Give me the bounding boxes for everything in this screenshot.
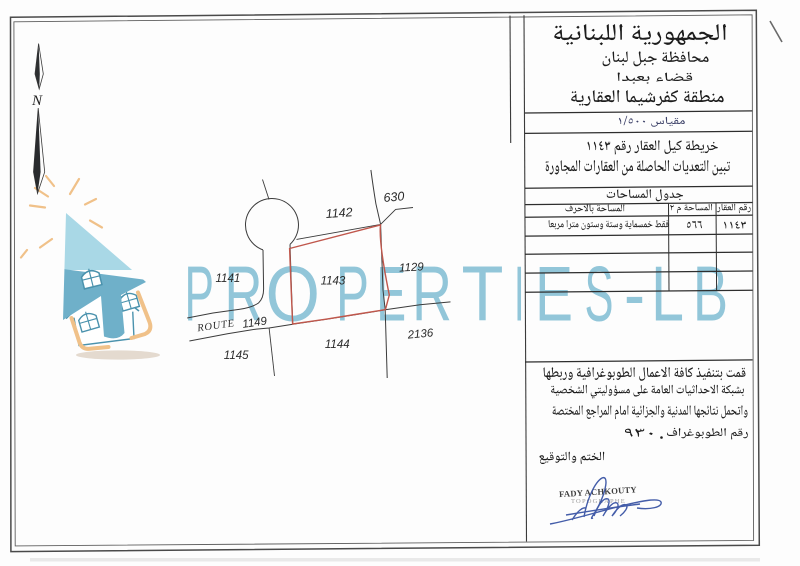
svg-text:1143: 1143 xyxy=(321,276,346,288)
svg-text:B: B xyxy=(693,250,728,338)
svg-text:1129: 1129 xyxy=(399,261,425,274)
svg-text:L: L xyxy=(651,250,684,338)
svg-text:T: T xyxy=(462,250,504,338)
svg-text:1144: 1144 xyxy=(325,339,350,351)
svg-text:N: N xyxy=(31,93,43,109)
svg-text:1141: 1141 xyxy=(216,273,241,285)
svg-text:-: - xyxy=(624,250,645,338)
svg-text:S: S xyxy=(585,250,614,338)
svg-text:1142: 1142 xyxy=(325,205,353,221)
svg-text:630: 630 xyxy=(383,189,405,205)
svg-text:I: I xyxy=(514,250,525,338)
svg-text:2136: 2136 xyxy=(406,327,434,341)
svg-text:E: E xyxy=(535,250,573,338)
svg-text:1145: 1145 xyxy=(224,350,249,362)
svg-text:P: P xyxy=(336,250,369,338)
